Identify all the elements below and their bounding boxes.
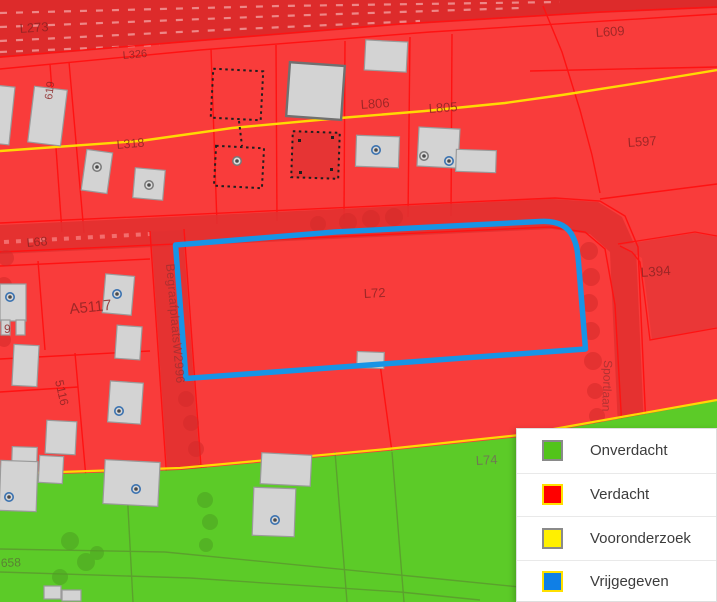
parcel-label-l609: L609 <box>595 23 625 40</box>
parcel-label-l318: L318 <box>116 136 145 152</box>
building <box>44 586 61 599</box>
building <box>115 325 142 360</box>
parcel-label-l74: L74 <box>475 452 497 468</box>
legend-item-vooronderzoek: Vooronderzoek <box>517 516 716 560</box>
building <box>16 320 25 335</box>
legend-swatch-onverdacht <box>542 440 563 461</box>
street-label-sportlaan: Sportlaan <box>599 360 615 412</box>
building <box>364 40 408 72</box>
legend-swatch-vrijgegeven <box>542 571 563 592</box>
parcel-label-l394: L394 <box>640 263 671 280</box>
map-viewport[interactable]: L273 L326 619 L318 L806 L805 L609 L597 L… <box>0 0 717 602</box>
legend-label-onverdacht: Onverdacht <box>590 442 668 459</box>
building <box>62 590 81 601</box>
parcel-label-l597: L597 <box>627 133 657 150</box>
building <box>456 149 497 172</box>
building <box>38 455 63 483</box>
building <box>0 284 26 321</box>
parcel-label-l326: L326 <box>122 48 147 62</box>
parcel-label-l806: L806 <box>360 95 390 112</box>
legend-item-vrijgegeven: Vrijgegeven <box>517 560 716 602</box>
parcel-label-l68: L68 <box>26 234 48 250</box>
parcel-label-l805: L805 <box>428 99 458 116</box>
building <box>260 453 312 487</box>
legend-label-verdacht: Verdacht <box>590 486 649 503</box>
building <box>45 420 77 455</box>
legend-item-onverdacht: Onverdacht <box>517 429 716 473</box>
legend-swatch-verdacht <box>542 484 563 505</box>
parcel-label-l72: L72 <box>363 285 385 301</box>
building <box>252 487 296 536</box>
legend-label-vooronderzoek: Vooronderzoek <box>590 530 691 547</box>
building <box>286 62 345 120</box>
legend-item-verdacht: Verdacht <box>517 473 716 517</box>
parcel-label-619: 619 <box>43 81 57 101</box>
building <box>12 344 39 386</box>
legend-swatch-vooronderzoek <box>542 528 563 549</box>
house-number-label-9: 9 <box>4 322 11 336</box>
building <box>103 460 160 507</box>
parcel-label-l273: L273 <box>19 19 49 36</box>
map-legend: Onverdacht Verdacht Vooronderzoek Vrijge… <box>516 428 717 602</box>
parcel-label-658: 658 <box>1 555 22 570</box>
building <box>0 460 38 511</box>
legend-label-vrijgegeven: Vrijgegeven <box>590 573 669 590</box>
building <box>108 381 144 424</box>
